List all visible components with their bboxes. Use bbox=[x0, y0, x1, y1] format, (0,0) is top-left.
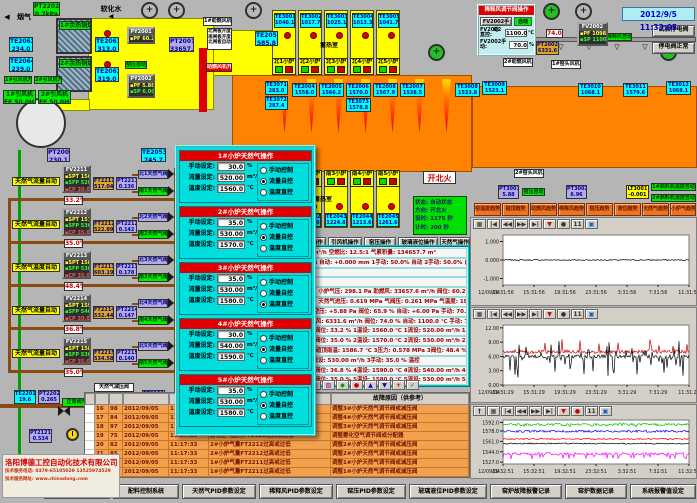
chart-toolbar-button[interactable]: ▼ bbox=[557, 406, 570, 416]
svg-text:7:32:51: 7:32:51 bbox=[649, 469, 668, 475]
sensor-dot-icon bbox=[284, 32, 291, 39]
fan-icon: + bbox=[428, 44, 445, 61]
te3001-box: TE30011040.1 bbox=[274, 13, 295, 28]
fv2212-controller: FV2212▪SPT 1570.0▪SFP 530.00▪CP 35.0% bbox=[62, 208, 91, 236]
side-inactive-indicator bbox=[363, 66, 371, 73]
mode-radio-option[interactable]: 温度直控 bbox=[258, 411, 308, 422]
side-active-indicator bbox=[327, 66, 335, 73]
temp-setpoint-input[interactable]: 1580.0 bbox=[217, 408, 245, 417]
comb-air-fan-on-label: 助燃风机开 bbox=[206, 63, 232, 72]
alarm-cell: 调整雾化空气调节阀或分配器 bbox=[331, 432, 469, 441]
flow-setpoint-input[interactable]: 530.00 bbox=[217, 397, 245, 406]
manual-setpoint-input[interactable]: 30.0 bbox=[217, 162, 245, 171]
side-active-indicator bbox=[353, 66, 361, 73]
mode-radio-group: 手动控制流量自控温度直控 bbox=[257, 219, 309, 257]
sensor-dot-icon bbox=[336, 32, 343, 39]
chart-toolbar-button[interactable]: ● bbox=[571, 406, 584, 416]
north-port-2: 北2小炉 bbox=[298, 58, 322, 75]
ft2212-box: FT2212522.89 bbox=[93, 220, 114, 233]
alarm-toolbar-button[interactable]: ● bbox=[350, 380, 363, 390]
kiln-pressure-auto2-label: 窑压自动 bbox=[522, 188, 545, 196]
chart-toolbar-button[interactable]: ● bbox=[557, 219, 570, 229]
north-gas-valve-label-2: 北2天然气阀 bbox=[138, 213, 168, 222]
side-active-indicator bbox=[327, 178, 335, 185]
manual-setpoint-input[interactable]: 30.0 bbox=[217, 330, 245, 339]
svg-text:19:31:29: 19:31:29 bbox=[554, 390, 576, 396]
te2043-box: TE20431224.8 bbox=[325, 213, 347, 227]
alarm-cell: 调整3#小炉天然气调节阀或减压阀 bbox=[331, 405, 469, 414]
ft2214-box: FT2214532.44 bbox=[93, 306, 114, 319]
valve-output-4: 36.8% bbox=[64, 325, 83, 334]
ft2213-box: FT2213603.19 bbox=[93, 263, 114, 276]
fan-icon: + bbox=[543, 3, 560, 20]
flue-gas-arrow-icon: ◀ bbox=[2, 13, 12, 22]
side-inactive-indicator bbox=[311, 66, 319, 73]
side-inactive-indicator bbox=[389, 178, 397, 185]
alarm-cell: 11:17:33 bbox=[169, 468, 209, 477]
combustion-air-duct bbox=[199, 48, 207, 112]
field-label: 温度设定: bbox=[182, 298, 215, 304]
mode-radio-option[interactable]: 流量自控 bbox=[258, 400, 308, 411]
south-gas-valve-label-1: 南1天然气阀 bbox=[138, 187, 168, 196]
manual-setpoint-input[interactable]: 35.0 bbox=[217, 386, 245, 395]
side-active-indicator bbox=[301, 66, 309, 73]
manual-setpoint-input[interactable]: 35.0 bbox=[217, 274, 245, 283]
te2005-box: TE20051566.2 bbox=[319, 83, 344, 97]
lt3001-box: LT3001-0.001 bbox=[626, 185, 649, 199]
dilution-manual-output-input[interactable]: 70.0 bbox=[509, 41, 528, 49]
svg-text:11:31:56: 11:31:56 bbox=[678, 290, 697, 296]
north-gas-valve-label-4: 北4天然气阀 bbox=[138, 299, 168, 308]
alarm-cell: 2012/09/05 bbox=[123, 441, 169, 450]
nav-button[interactable]: 窑压PID参数设定 bbox=[336, 484, 406, 499]
fv2214-controller: FV2214▪SPT 1590.0▪SFP 540.00▪CP 30.0% bbox=[62, 294, 91, 322]
gas-mode-label-5: 天然气流量自动 bbox=[12, 349, 60, 358]
mode-radio-option[interactable]: 手动控制 bbox=[258, 389, 308, 400]
chart-toolbar: ▦|◀◀◀▶▶▶|▼●11▣ bbox=[473, 219, 598, 230]
pt3002-box: PT30026.96 bbox=[566, 185, 587, 199]
field-label: 流量设定: bbox=[182, 343, 215, 349]
te2006-box: TE20061570.0 bbox=[346, 83, 371, 97]
svg-text:1592.0: 1592.0 bbox=[482, 420, 499, 426]
te2063-box: TE2063319.0 bbox=[95, 67, 119, 82]
dilution-temp-setpoint-input[interactable]: 1100.0 bbox=[505, 29, 527, 37]
side-inactive-indicator bbox=[337, 178, 345, 185]
alarm-cell: 2#小炉气量FT2212过高或过低 bbox=[209, 450, 331, 459]
chart-toolbar-button[interactable]: 11 bbox=[571, 219, 584, 229]
boiler2-label: 2#余热锅炉 bbox=[59, 59, 91, 68]
nav-button[interactable]: 系统报警值设定 bbox=[630, 484, 696, 499]
svg-text:12.00: 12.00 bbox=[485, 326, 499, 332]
south-gas-valve-label-4: 南4天然气阀 bbox=[138, 316, 168, 325]
dilution-valve-panel: 稀释风调节阀操作FV2002手动自动FV2002直控:1100.0℃FV2002… bbox=[477, 4, 536, 56]
vendor-name: 洛阳博德工控自动化技术有限公司 bbox=[5, 457, 117, 468]
trend-chart-panel: ▦|◀◀◀▶▶▶|▼●11▣1.0000.000-1.00012/09/0411… bbox=[470, 217, 697, 306]
fv2002-controller: FV2002▪PF 1098.1▪SP 1100.0▪CP 70.0% bbox=[577, 22, 608, 46]
trend-button[interactable]: 天然气趋势 bbox=[642, 203, 669, 216]
radio-icon bbox=[260, 335, 267, 342]
radio-label: 温度直控 bbox=[269, 302, 293, 308]
svg-text:23:31:29: 23:31:29 bbox=[585, 390, 607, 396]
te2051-box: TE2051585.8 bbox=[255, 31, 278, 46]
radio-label: 温度直控 bbox=[269, 414, 293, 420]
radio-label: 流量自控 bbox=[269, 291, 293, 297]
alarm-toolbar-button[interactable]: ◆ bbox=[336, 380, 349, 390]
trend-plot: 1.0000.000-1.00012/09/0411:31:5615:31:56… bbox=[471, 231, 697, 307]
trend-button[interactable]: 液位趋势 bbox=[614, 203, 641, 216]
chart-toolbar-button[interactable]: ▶▶ bbox=[529, 406, 542, 416]
nav-button[interactable]: 稀释风PID参数设定 bbox=[259, 484, 333, 499]
field-label: 手动设定: bbox=[182, 332, 215, 338]
alarm-cell: 18 bbox=[95, 423, 109, 432]
mode-radio-option[interactable]: 手动控制 bbox=[258, 277, 308, 288]
radio-icon bbox=[260, 357, 267, 364]
fv2002-manual-button[interactable]: FV2002手动 bbox=[480, 17, 512, 26]
trend-button[interactable]: 碹顶趋势 bbox=[502, 203, 529, 216]
radio-label: 手动控制 bbox=[269, 392, 293, 398]
alarm-cell: 1#小炉气量FT2211过高或过低 bbox=[209, 459, 331, 468]
softened-water-arrow-icon: ◀ bbox=[106, 13, 116, 21]
alarm-table-row[interactable]: 21852012/09/0511:17:332#小炉气量FT2212过高或过低调… bbox=[85, 450, 469, 459]
flow-setpoint-input[interactable]: 540.00 bbox=[217, 341, 245, 350]
kilnhead-fan1-on-label: 1#窑头风机开 bbox=[551, 60, 581, 69]
chart-toolbar-button[interactable]: ◀◀ bbox=[515, 406, 528, 416]
radio-label: 温度直控 bbox=[269, 246, 293, 252]
chart-toolbar: ▦|◀◀◀▶▶▶|▼●11▣ bbox=[473, 309, 598, 320]
alarm-cell: 调整1#小炉天然气调节阀或减压阀 bbox=[331, 459, 469, 468]
chart-toolbar-button[interactable]: ▶▶ bbox=[515, 219, 528, 229]
mode-radio-option[interactable]: 温度直控 bbox=[258, 187, 308, 198]
field-label: 手动设定: bbox=[182, 388, 215, 394]
vendor-phone: 技术服务电话: 0379-65105029 13525974529 bbox=[5, 468, 117, 476]
radio-label: 流量自控 bbox=[269, 235, 293, 241]
regen-north-label: 蓄热室 bbox=[316, 42, 342, 50]
alarm-cell: 2012/09/05 bbox=[123, 423, 169, 432]
chart-toolbar-button[interactable]: ▼ bbox=[543, 309, 556, 319]
mode-radio-option[interactable]: 流量自控 bbox=[258, 344, 308, 355]
radio-icon bbox=[260, 279, 267, 286]
field-unit: % bbox=[247, 164, 253, 170]
alarm-table-row[interactable]: 22812012/09/0511:17:331#小炉气量FT2211过高或过低调… bbox=[85, 459, 469, 468]
gas-pipe bbox=[8, 370, 176, 373]
side-active-indicator bbox=[379, 178, 387, 185]
gas-reducer-label: 天然气减压阀 bbox=[94, 383, 134, 392]
south-gas-valve-label-3: 南3天然气阀 bbox=[138, 273, 168, 282]
radio-icon bbox=[260, 346, 267, 353]
alarm-table-row[interactable]: ▶23832012/09/0511:17:331#小炉气量FT2211过高或过低… bbox=[85, 468, 469, 477]
field-label: 温度设定: bbox=[182, 242, 215, 248]
chart-toolbar-button[interactable]: ▦ bbox=[473, 219, 486, 229]
chart-toolbar-button[interactable]: 11 bbox=[571, 309, 584, 319]
alarm-cell: 调整4#小炉天然气调节阀或减压阀 bbox=[331, 414, 469, 423]
radio-icon bbox=[260, 234, 267, 241]
chart-toolbar-button[interactable]: ◀◀ bbox=[501, 309, 514, 319]
radio-label: 手动控制 bbox=[269, 168, 293, 174]
chart-toolbar-button[interactable]: ▼ bbox=[543, 219, 556, 229]
sensor-dot-icon bbox=[388, 32, 395, 39]
alarm-cell: 75 bbox=[109, 432, 123, 441]
alarm-cell: 2012/09/05 bbox=[123, 432, 169, 441]
pt2214-box: PT22140.147 bbox=[116, 306, 137, 319]
trend-plot: 1592.01578.01561.01544.01527.012/09/0411… bbox=[471, 418, 697, 480]
chart-toolbar-button[interactable]: |◀ bbox=[487, 219, 500, 229]
svg-text:3:32:51: 3:32:51 bbox=[618, 469, 637, 475]
chart-toolbar-button[interactable]: ▣ bbox=[585, 219, 598, 229]
trend-button[interactable]: 窑温度趋势 bbox=[474, 203, 501, 216]
svg-text:3.00: 3.00 bbox=[488, 369, 499, 375]
row-selector-icon bbox=[85, 432, 95, 441]
te3005-box: TE30051041.7 bbox=[378, 13, 399, 28]
radio-label: 手动控制 bbox=[269, 224, 293, 230]
pt2215-box: PT22150.140 bbox=[116, 349, 137, 362]
mode-radio-option[interactable]: 温度直控 bbox=[258, 355, 308, 366]
field-label: 温度设定: bbox=[182, 186, 215, 192]
trend-plot: 12.009.006.003.000.0012/09/0411:31:2915:… bbox=[471, 321, 697, 404]
alarm-cell: 调整2#小炉天然气调节阀或减压阀 bbox=[331, 441, 469, 450]
radio-label: 手动控制 bbox=[269, 336, 293, 342]
idfan1-on-label: 1#引风机开 bbox=[4, 76, 32, 84]
fv2211-controller: FV2211▪SPT 1560.0▪SFP 520.00▪CP 30.0% bbox=[62, 165, 91, 193]
alarm-header-cell bbox=[123, 393, 169, 405]
sensor-dot-icon bbox=[310, 32, 317, 39]
svg-text:1544.0: 1544.0 bbox=[482, 450, 499, 456]
mode-radio-option[interactable]: 手动控制 bbox=[258, 333, 308, 344]
kiln-pressure-auto-label: 窑压自动 bbox=[125, 61, 147, 69]
alarm-header-cell bbox=[109, 393, 123, 405]
radio-icon bbox=[260, 391, 267, 398]
mode-radio-option[interactable]: 手动控制 bbox=[258, 221, 308, 232]
field-unit: % bbox=[529, 43, 534, 48]
field-unit: ℃ bbox=[247, 242, 254, 248]
svg-text:23:32:51: 23:32:51 bbox=[585, 469, 607, 475]
valve-output-5: 35.0% bbox=[64, 368, 83, 377]
alarm-toolbar-button[interactable]: + bbox=[392, 380, 405, 390]
te3009-box: TE30091523.1 bbox=[482, 81, 507, 95]
chart-toolbar-button[interactable]: ▶| bbox=[543, 406, 556, 416]
te3002-box: TE30021017.7 bbox=[300, 13, 321, 28]
north-port-3: 北3小炉 bbox=[324, 58, 348, 75]
temp-setpoint-input[interactable]: 1570.0 bbox=[217, 240, 245, 249]
popup-section: 1#小炉天然气操作手动设定:30.0%流量设定:520.00m³/h温度设定:1… bbox=[179, 150, 312, 203]
pt2003-box: PT2003230.1 bbox=[47, 148, 70, 162]
chart-toolbar-button[interactable]: ▶| bbox=[529, 219, 542, 229]
nav-button[interactable]: 玻璃液位PID参数设定 bbox=[409, 484, 487, 499]
mode-radio-option[interactable]: 温度直控 bbox=[258, 299, 308, 310]
te2004-box: TE20041558.0 bbox=[292, 83, 317, 97]
alarm-cell: 11:17:33 bbox=[169, 450, 209, 459]
side-inactive-indicator bbox=[389, 66, 397, 73]
fv2002-output-pct: 74.0% bbox=[546, 29, 563, 38]
scada-main-screen: 2012/9/5 11:33:05 洛阳博德工控自动化技术有限公司 技术服务电话… bbox=[0, 0, 697, 503]
mode-radio-option[interactable]: 流量自控 bbox=[258, 176, 308, 187]
field-unit: ℃ bbox=[247, 410, 254, 416]
chimney bbox=[16, 98, 66, 148]
chart-toolbar-button[interactable]: ▣ bbox=[585, 309, 598, 319]
valve-output-3: 48.4% bbox=[64, 282, 83, 291]
south-gas-valve-label-2: 南2天然气阀 bbox=[138, 230, 168, 239]
popup-section-title: 5#小炉天然气操作 bbox=[180, 375, 311, 385]
svg-text:15:32:51: 15:32:51 bbox=[523, 469, 545, 475]
furnace-working-end bbox=[472, 86, 697, 168]
gas-pipe bbox=[8, 327, 176, 330]
trend-chart-panel: ▦|◀◀◀▶▶▶|▼●11▣12.009.006.003.000.0012/09… bbox=[470, 307, 697, 403]
popup-section-title: 4#小炉天然气操作 bbox=[180, 319, 311, 329]
alarm-cell: 11:17:33 bbox=[169, 459, 209, 468]
alarm-toolbar-button[interactable]: ▼ bbox=[378, 380, 391, 390]
svg-text:15:31:56: 15:31:56 bbox=[523, 290, 545, 296]
chart-toolbar-button[interactable]: ▦ bbox=[473, 309, 486, 319]
mode-radio-option[interactable]: 温度直控 bbox=[258, 243, 308, 254]
field-unit: % bbox=[247, 276, 253, 282]
radio-label: 流量自控 bbox=[269, 347, 293, 353]
gas-main-riser bbox=[8, 198, 11, 373]
trend-button[interactable]: 小炉气趋势 bbox=[670, 203, 696, 216]
field-label: 流量设定: bbox=[182, 175, 215, 181]
svg-text:1561.0: 1561.0 bbox=[482, 439, 499, 445]
alarm-header-cell: 故障原因（供参考） bbox=[331, 393, 469, 405]
burner-nozzle-icon: ▽ bbox=[612, 43, 622, 52]
fv2215-controller: FV2215▪SPT 1580.0▪SFP 530.00▪CP 35.0% bbox=[62, 337, 91, 365]
side-inactive-indicator bbox=[363, 178, 371, 185]
side-active-indicator bbox=[379, 66, 387, 73]
pt3001-box: PT30015.88 bbox=[498, 185, 519, 199]
nav-button[interactable]: 天然气PID参数设定 bbox=[182, 484, 256, 499]
alarm-cell: 2012/09/05 bbox=[123, 414, 169, 423]
mode-radio-option[interactable]: 流量自控 bbox=[258, 288, 308, 299]
temp-setpoint-input[interactable]: 1580.0 bbox=[217, 296, 245, 305]
popup-section-title: 1#小炉天然气操作 bbox=[180, 151, 311, 161]
alarm-toolbar-button[interactable]: ▧ bbox=[322, 380, 335, 390]
trend-chart-panel: †▦|◀◀◀▶▶▶|▼●11▣1592.01578.01561.01544.01… bbox=[470, 404, 697, 479]
sensor-dot-icon bbox=[362, 32, 369, 39]
mode-radio-option[interactable]: 手动控制 bbox=[258, 165, 308, 176]
south-port-5: 南5小炉 bbox=[376, 170, 400, 187]
pt2202-box: PT22020.7kPa bbox=[33, 2, 60, 16]
radio-label: 手动控制 bbox=[269, 280, 293, 286]
field-unit: ℃ bbox=[247, 186, 254, 192]
manual-setpoint-input[interactable]: 35.0 bbox=[217, 218, 245, 227]
svg-text:0.00: 0.00 bbox=[488, 383, 499, 389]
svg-text:-1.000: -1.000 bbox=[484, 277, 499, 283]
popup-section: 4#小炉天然气操作手动设定:30.0%流量设定:540.00m³/h温度设定:1… bbox=[179, 318, 312, 371]
mode-radio-group: 手动控制流量自控温度直控 bbox=[257, 387, 309, 425]
popup-section: 2#小炉天然气操作手动设定:35.0%流量设定:530.00m³/h温度设定:1… bbox=[179, 206, 312, 259]
nav-button[interactable]: 窑炉数据记录 bbox=[565, 484, 627, 499]
svg-text:3:31:56: 3:31:56 bbox=[618, 290, 637, 296]
temp-setpoint-input[interactable]: 1560.0 bbox=[217, 184, 245, 193]
field-label: 流量设定: bbox=[182, 399, 215, 405]
south-port-4: 南4小炉 bbox=[350, 170, 374, 187]
pt2121-box: PT21210.534 bbox=[29, 429, 52, 443]
chart-toolbar-button[interactable]: ◀◀ bbox=[501, 219, 514, 229]
alarm-cell: 调整2#小炉天然气调节阀或减压阀 bbox=[331, 450, 469, 459]
gas-mode-label-4: 天然气流量自动 bbox=[12, 306, 60, 315]
te3011-box: TE30111579.6 bbox=[623, 83, 648, 97]
alarm-cell: 1#小炉气量FT2211过高或过低 bbox=[209, 468, 331, 477]
kilnhead-fan2-on-label: 2#窑头风机开 bbox=[514, 169, 544, 178]
field-unit: ℃ bbox=[247, 298, 254, 304]
chart-toolbar-button[interactable]: ▶| bbox=[529, 309, 542, 319]
row-selector-icon bbox=[85, 441, 95, 450]
pt2213-box: PT22130.178 bbox=[116, 263, 137, 276]
svg-text:7:31:56: 7:31:56 bbox=[649, 290, 668, 296]
flow-setpoint-input[interactable]: 520.00 bbox=[217, 173, 245, 182]
te3004-box: TE30041013.3 bbox=[352, 13, 373, 28]
alarm-toolbar-button[interactable]: ▲ bbox=[364, 380, 377, 390]
fv2002-auto-button[interactable]: 自动 bbox=[514, 17, 532, 26]
north-port-5: 北5小炉 bbox=[376, 58, 400, 75]
te2061-box: TE2061313.0 bbox=[95, 37, 119, 52]
chart-toolbar-button[interactable]: |◀ bbox=[487, 309, 500, 319]
comb-fan2-on-label: 2#助燃风机开 bbox=[503, 58, 533, 67]
valve-icon[interactable] bbox=[58, 406, 70, 416]
chart-toolbar-button[interactable]: † bbox=[473, 406, 486, 416]
trend-button[interactable]: 助燃风趋势 bbox=[530, 203, 557, 216]
sensor-dot-icon bbox=[104, 30, 111, 37]
field-unit: ℃ bbox=[247, 354, 254, 360]
flow-setpoint-input[interactable]: 530.00 bbox=[217, 229, 245, 238]
mode-radio-group: 手动控制流量自控温度直控 bbox=[257, 275, 309, 313]
chart-toolbar-button[interactable]: ▦ bbox=[487, 406, 500, 416]
chart-toolbar-button[interactable]: ▶▶ bbox=[515, 309, 528, 319]
chart-toolbar-button[interactable]: ● bbox=[557, 309, 570, 319]
svg-text:1527.0: 1527.0 bbox=[482, 460, 499, 466]
idfan2-speed-box: 2#引风机FF 50.0Hz bbox=[38, 90, 71, 104]
datetime-display: 2012/9/5 11:33:05 bbox=[622, 7, 695, 21]
te3008-box: TE30081533.8 bbox=[455, 83, 480, 97]
chart-toolbar-button[interactable]: ▣ bbox=[599, 406, 612, 416]
north-gas-valve-label-5: 北5天然气阀 bbox=[138, 342, 168, 351]
svg-text:19:31:56: 19:31:56 bbox=[554, 290, 576, 296]
te3012-box: TE30121068.1 bbox=[666, 81, 691, 95]
alarm-table-row[interactable]: 20822012/09/0511:17:332#小炉气量FT2212过高或过低调… bbox=[85, 441, 469, 450]
radio-icon bbox=[260, 413, 267, 420]
valve-output-1: 33.2% bbox=[64, 196, 83, 205]
nav-button[interactable]: 窑炉故障报警记录 bbox=[490, 484, 562, 499]
dilution-panel-title: 稀释风调节阀操作 bbox=[479, 6, 534, 15]
svg-text:11:31:29: 11:31:29 bbox=[678, 390, 697, 396]
mode-radio-option[interactable]: 流量自控 bbox=[258, 232, 308, 243]
alarm-toolbar-button[interactable]: ✓ bbox=[406, 380, 419, 390]
field-unit: % bbox=[247, 388, 253, 394]
chart-toolbar-button[interactable]: 11 bbox=[585, 406, 598, 416]
valve-output-2: 35.0% bbox=[64, 239, 83, 248]
alarm-cell: 调整1#小炉天然气调节阀或减压阀 bbox=[331, 468, 469, 477]
trend-button[interactable]: 稀释风趋势 bbox=[558, 203, 585, 216]
te2007-box: TE20071538.5 bbox=[400, 83, 425, 97]
nav-button[interactable]: 配料控制系统 bbox=[113, 484, 179, 499]
trend-button[interactable]: 窑压趋势 bbox=[586, 203, 613, 216]
te3072-box: TE3072287.4 bbox=[265, 96, 288, 110]
svg-text:0.000: 0.000 bbox=[485, 258, 499, 264]
svg-text:11:32:51: 11:32:51 bbox=[678, 469, 697, 475]
svg-text:19:32:51: 19:32:51 bbox=[554, 469, 576, 475]
field-label: 流量设定: bbox=[182, 287, 215, 293]
svg-text:1578.0: 1578.0 bbox=[482, 429, 499, 435]
temp-setpoint-input[interactable]: 1590.0 bbox=[217, 352, 245, 361]
fan-icon: + bbox=[575, 3, 592, 20]
alarm-cell: 97 bbox=[109, 423, 123, 432]
chart-toolbar-button[interactable]: |◀ bbox=[501, 406, 514, 416]
stop-valve-normal-button[interactable]: 停电阀正常 bbox=[652, 42, 695, 54]
svg-text:3:31:29: 3:31:29 bbox=[618, 390, 637, 396]
te3003-box: TE30031025.1 bbox=[326, 13, 347, 28]
svg-text:11:31:56: 11:31:56 bbox=[492, 290, 514, 296]
alarm-cell: 82 bbox=[109, 441, 123, 450]
ft2215-box: FT2215534.58 bbox=[93, 349, 114, 362]
gas-pipe bbox=[8, 241, 176, 244]
flow-setpoint-input[interactable]: 530.00 bbox=[217, 285, 245, 294]
